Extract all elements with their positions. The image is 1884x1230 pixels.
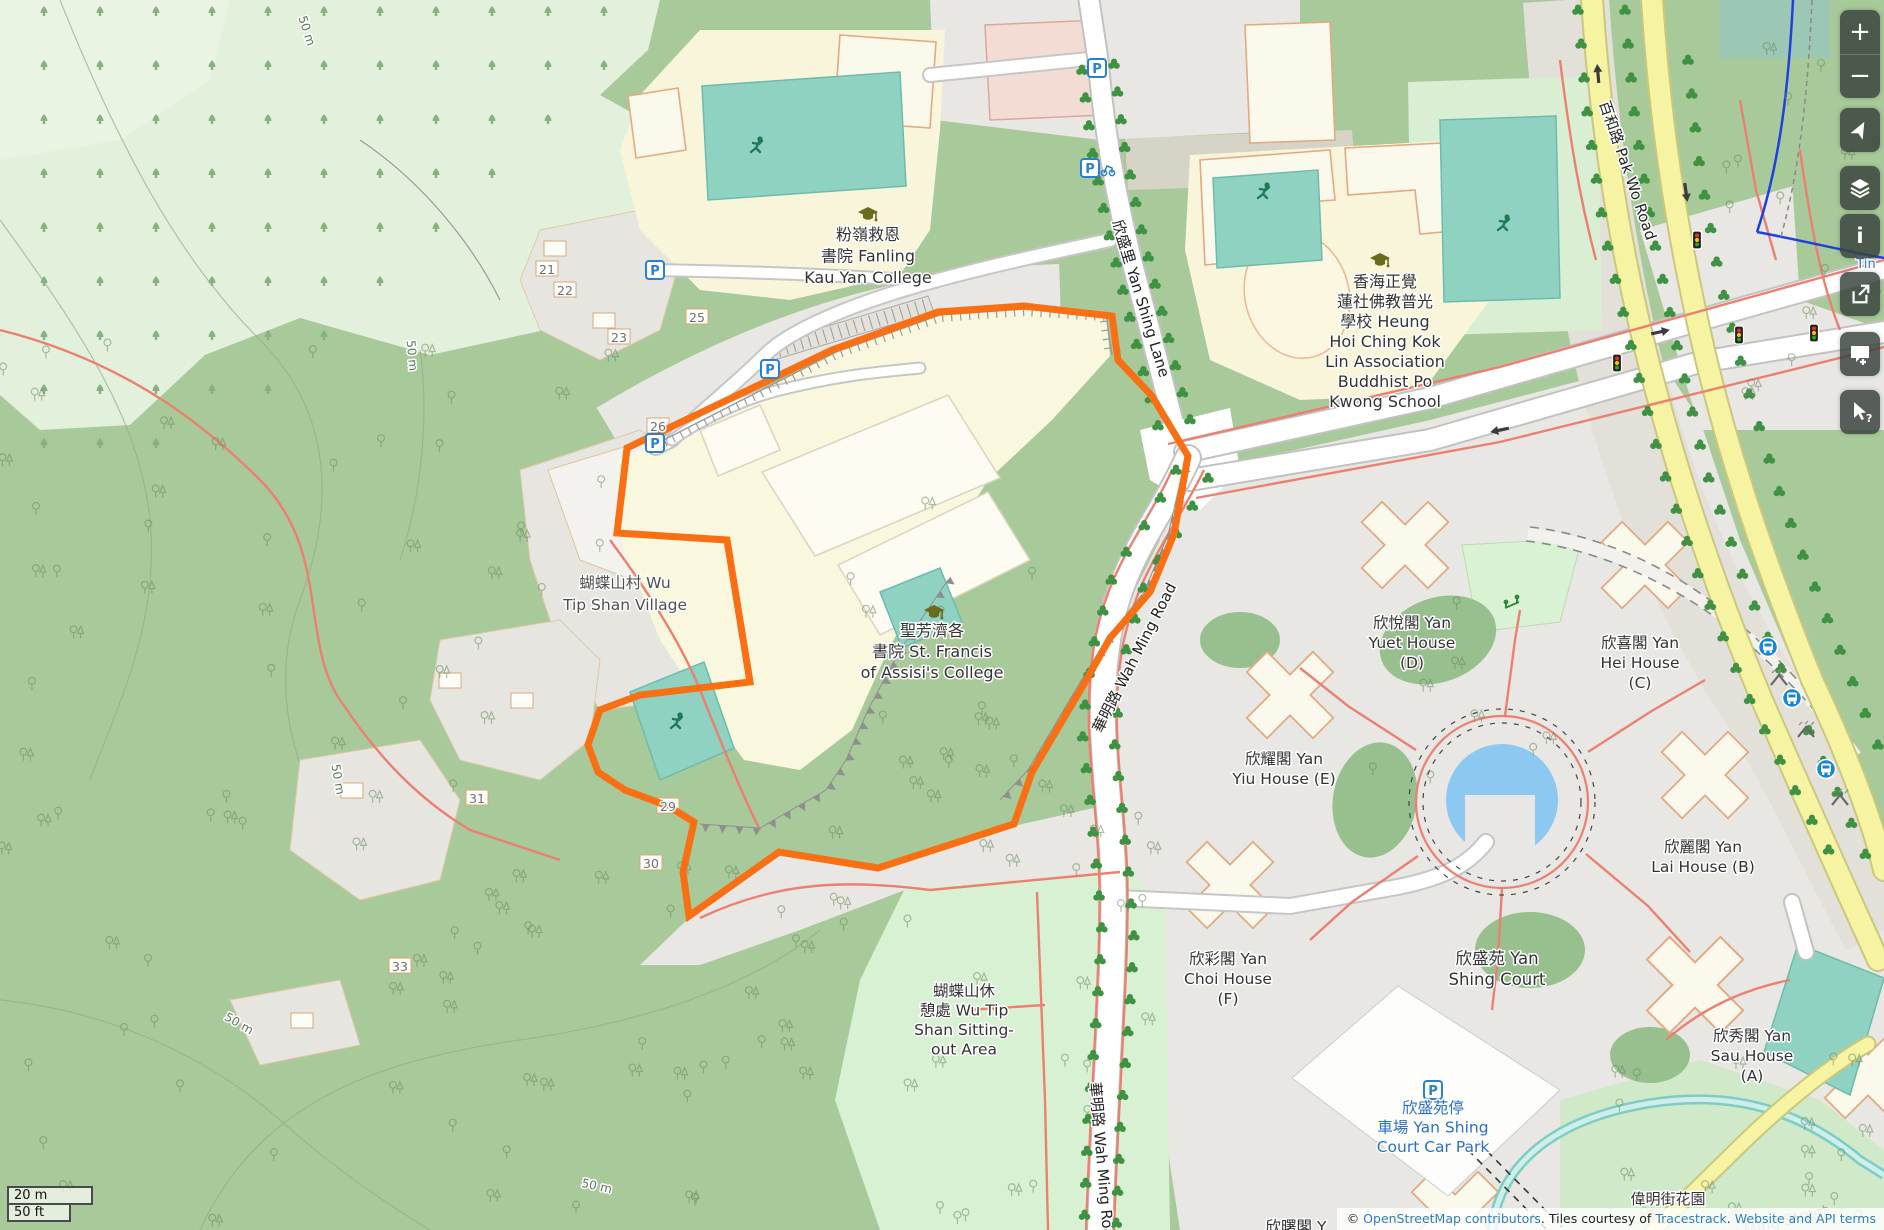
svg-text:蓮社佛教普光: 蓮社佛教普光	[1337, 292, 1433, 311]
map-label-house-30: 30	[643, 856, 659, 871]
map-label-house-31: 31	[469, 791, 485, 806]
svg-text:30: 30	[643, 856, 659, 871]
svg-text:Hoi Ching Kok: Hoi Ching Kok	[1329, 332, 1441, 351]
svg-text:欣盛苑停: 欣盛苑停	[1402, 1099, 1464, 1117]
map-canvas[interactable]: PPPPPP粉嶺救恩書院 FanlingKau Yan College香海正覺蓮…	[0, 0, 1884, 1230]
svg-text:21: 21	[539, 262, 555, 277]
attribution-copyright: ©	[1347, 1211, 1363, 1226]
bus-stop-icon	[1783, 689, 1802, 708]
bus-stop-icon	[1759, 638, 1778, 657]
svg-text:of Assisi's College: of Assisi's College	[861, 663, 1004, 682]
map-key-button[interactable]: i	[1840, 214, 1880, 258]
map-label-house-22: 22	[557, 283, 573, 298]
note-bubble-icon	[1848, 342, 1872, 366]
navigation-arrow-icon	[1849, 119, 1871, 141]
share-icon	[1849, 283, 1871, 305]
query-features-button[interactable]: ?	[1840, 390, 1880, 434]
parking-icon: P	[646, 261, 664, 279]
svg-text:26: 26	[650, 419, 666, 434]
layers-icon	[1848, 176, 1872, 200]
svg-text:(C): (C)	[1629, 674, 1652, 692]
svg-text:?: ?	[1866, 412, 1872, 424]
zoom-control-group: + −	[1840, 10, 1880, 98]
svg-text:25: 25	[689, 310, 705, 325]
svg-text:(F): (F)	[1217, 990, 1238, 1008]
map-label-tin-label: Tin	[1855, 257, 1875, 272]
locate-button[interactable]	[1840, 108, 1880, 152]
map-label-buddhist-po-kwong-school: 香海正覺蓮社佛教普光學校 HeungHoi Ching KokLin Assoc…	[1325, 272, 1445, 411]
traffic-signal-icon	[1735, 326, 1744, 344]
svg-text:蝴蝶山村 Wu: 蝴蝶山村 Wu	[579, 574, 671, 592]
traffic-signal-icon	[1693, 231, 1702, 249]
svg-text:粉嶺救恩: 粉嶺救恩	[836, 225, 900, 244]
share-control-group	[1840, 272, 1880, 316]
add-note-control-group	[1840, 332, 1880, 376]
add-note-button[interactable]	[1840, 332, 1880, 376]
parking-icon: P	[646, 434, 664, 452]
attribution: © OpenStreetMap contributors. Tiles cour…	[1337, 1208, 1884, 1230]
svg-text:Buddhist Po: Buddhist Po	[1338, 372, 1433, 391]
svg-text:欣彩閣 Yan: 欣彩閣 Yan	[1189, 950, 1267, 968]
zoom-in-button[interactable]: +	[1840, 10, 1880, 54]
svg-text:欣喜閣 Yan: 欣喜閣 Yan	[1601, 634, 1679, 652]
map-label-house-23: 23	[611, 330, 627, 345]
svg-text:Shing Court: Shing Court	[1448, 970, 1546, 989]
svg-text:欣悅閣 Yan: 欣悅閣 Yan	[1373, 614, 1451, 632]
svg-text:P: P	[765, 363, 775, 378]
svg-text:Yuet House: Yuet House	[1368, 634, 1456, 652]
map-key-control-group: i	[1840, 214, 1880, 258]
svg-text:Court Car Park: Court Car Park	[1377, 1138, 1490, 1156]
svg-text:50 m: 50 m	[404, 340, 421, 372]
scale-control: 20 m 50 ft	[7, 1186, 93, 1222]
svg-text:Lin Association: Lin Association	[1325, 352, 1445, 371]
svg-text:Kwong School: Kwong School	[1329, 392, 1441, 411]
svg-text:欣麗閣 Yan: 欣麗閣 Yan	[1664, 838, 1742, 856]
svg-text:Kau Yan College: Kau Yan College	[804, 268, 932, 287]
svg-text:33: 33	[392, 959, 408, 974]
svg-text:Tip Shan Village: Tip Shan Village	[562, 596, 687, 614]
svg-text:欣曙閣 Y: 欣曙閣 Y	[1266, 1218, 1327, 1230]
layers-control-group	[1840, 166, 1880, 210]
parking-icon: P	[1088, 59, 1106, 77]
svg-text:車場 Yan Shing: 車場 Yan Shing	[1377, 1119, 1488, 1137]
traffic-signal-icon	[1810, 324, 1819, 342]
map-label-contour-50m-2: 50 m	[404, 340, 421, 372]
svg-text:Shan Sitting-: Shan Sitting-	[914, 1021, 1014, 1039]
svg-text:欣秀閣 Yan: 欣秀閣 Yan	[1713, 1027, 1791, 1045]
svg-text:憩處 Wu Tip: 憩處 Wu Tip	[920, 1002, 1009, 1020]
svg-text:(A): (A)	[1741, 1067, 1764, 1085]
svg-text:Tin: Tin	[1855, 257, 1875, 272]
info-icon: i	[1856, 226, 1863, 247]
minus-icon: −	[1849, 63, 1871, 89]
map-label-house-21: 21	[539, 262, 555, 277]
svg-text:欣耀閣 Yan: 欣耀閣 Yan	[1245, 750, 1323, 768]
svg-text:29: 29	[660, 799, 676, 814]
svg-text:偉明街花園: 偉明街花園	[1630, 1190, 1705, 1208]
map-label-house-29: 29	[660, 799, 676, 814]
svg-text:P: P	[1092, 62, 1102, 77]
svg-text:Hei House: Hei House	[1601, 654, 1680, 672]
svg-text:香海正覺: 香海正覺	[1353, 272, 1417, 291]
svg-text:31: 31	[469, 791, 485, 806]
layers-button[interactable]	[1840, 166, 1880, 210]
car-park-icon: P	[1424, 1081, 1442, 1099]
svg-text:P: P	[650, 437, 660, 452]
query-cursor-icon: ?	[1848, 400, 1872, 424]
map-label-house-26: 26	[650, 419, 666, 434]
map-label-house-25: 25	[689, 310, 705, 325]
svg-text:22: 22	[557, 283, 573, 298]
map-label-partial-house-label: 欣曙閣 Y	[1266, 1218, 1327, 1230]
share-button[interactable]	[1840, 272, 1880, 316]
svg-text:Sau House: Sau House	[1711, 1047, 1794, 1065]
map-label-wai-ming-street-garden: 偉明街花園	[1630, 1190, 1705, 1208]
traffic-signal-icon	[1613, 354, 1622, 372]
svg-text:Choi House: Choi House	[1184, 970, 1272, 988]
svg-text:欣盛苑 Yan: 欣盛苑 Yan	[1455, 949, 1538, 968]
svg-text:out Area: out Area	[931, 1041, 997, 1059]
locate-control-group	[1840, 108, 1880, 152]
bus-stop-icon	[1817, 760, 1836, 779]
svg-text:學校 Heung: 學校 Heung	[1340, 312, 1429, 331]
svg-text:聖芳濟各: 聖芳濟各	[900, 621, 964, 640]
svg-text:書院 Fanling: 書院 Fanling	[821, 247, 915, 266]
svg-text:23: 23	[611, 330, 627, 345]
map-viewport: PPPPPP粉嶺救恩書院 FanlingKau Yan College香海正覺蓮…	[0, 0, 1884, 1230]
tracestrack-link[interactable]: Tracestrack	[1655, 1211, 1726, 1226]
svg-text:書院 St. Francis: 書院 St. Francis	[872, 642, 992, 661]
svg-text:Yiu House (E): Yiu House (E)	[1231, 770, 1335, 788]
svg-text:(D): (D)	[1400, 654, 1424, 672]
query-features-control-group: ?	[1840, 390, 1880, 434]
osm-contributors-link[interactable]: OpenStreetMap contributors	[1363, 1211, 1541, 1226]
svg-text:Lai House (B): Lai House (B)	[1651, 858, 1755, 876]
parking-icon: P	[761, 360, 779, 378]
scale-imperial: 50 ft	[7, 1203, 71, 1222]
svg-text:P: P	[650, 264, 660, 279]
svg-text:P: P	[1428, 1084, 1438, 1099]
map-label-house-33: 33	[392, 959, 408, 974]
zoom-out-button[interactable]: −	[1840, 54, 1880, 99]
plus-icon: +	[1849, 19, 1871, 45]
svg-text:蝴蝶山休: 蝴蝶山休	[933, 982, 996, 1000]
svg-text:P: P	[1085, 162, 1095, 177]
terms-link[interactable]: Website and API terms	[1735, 1211, 1876, 1226]
